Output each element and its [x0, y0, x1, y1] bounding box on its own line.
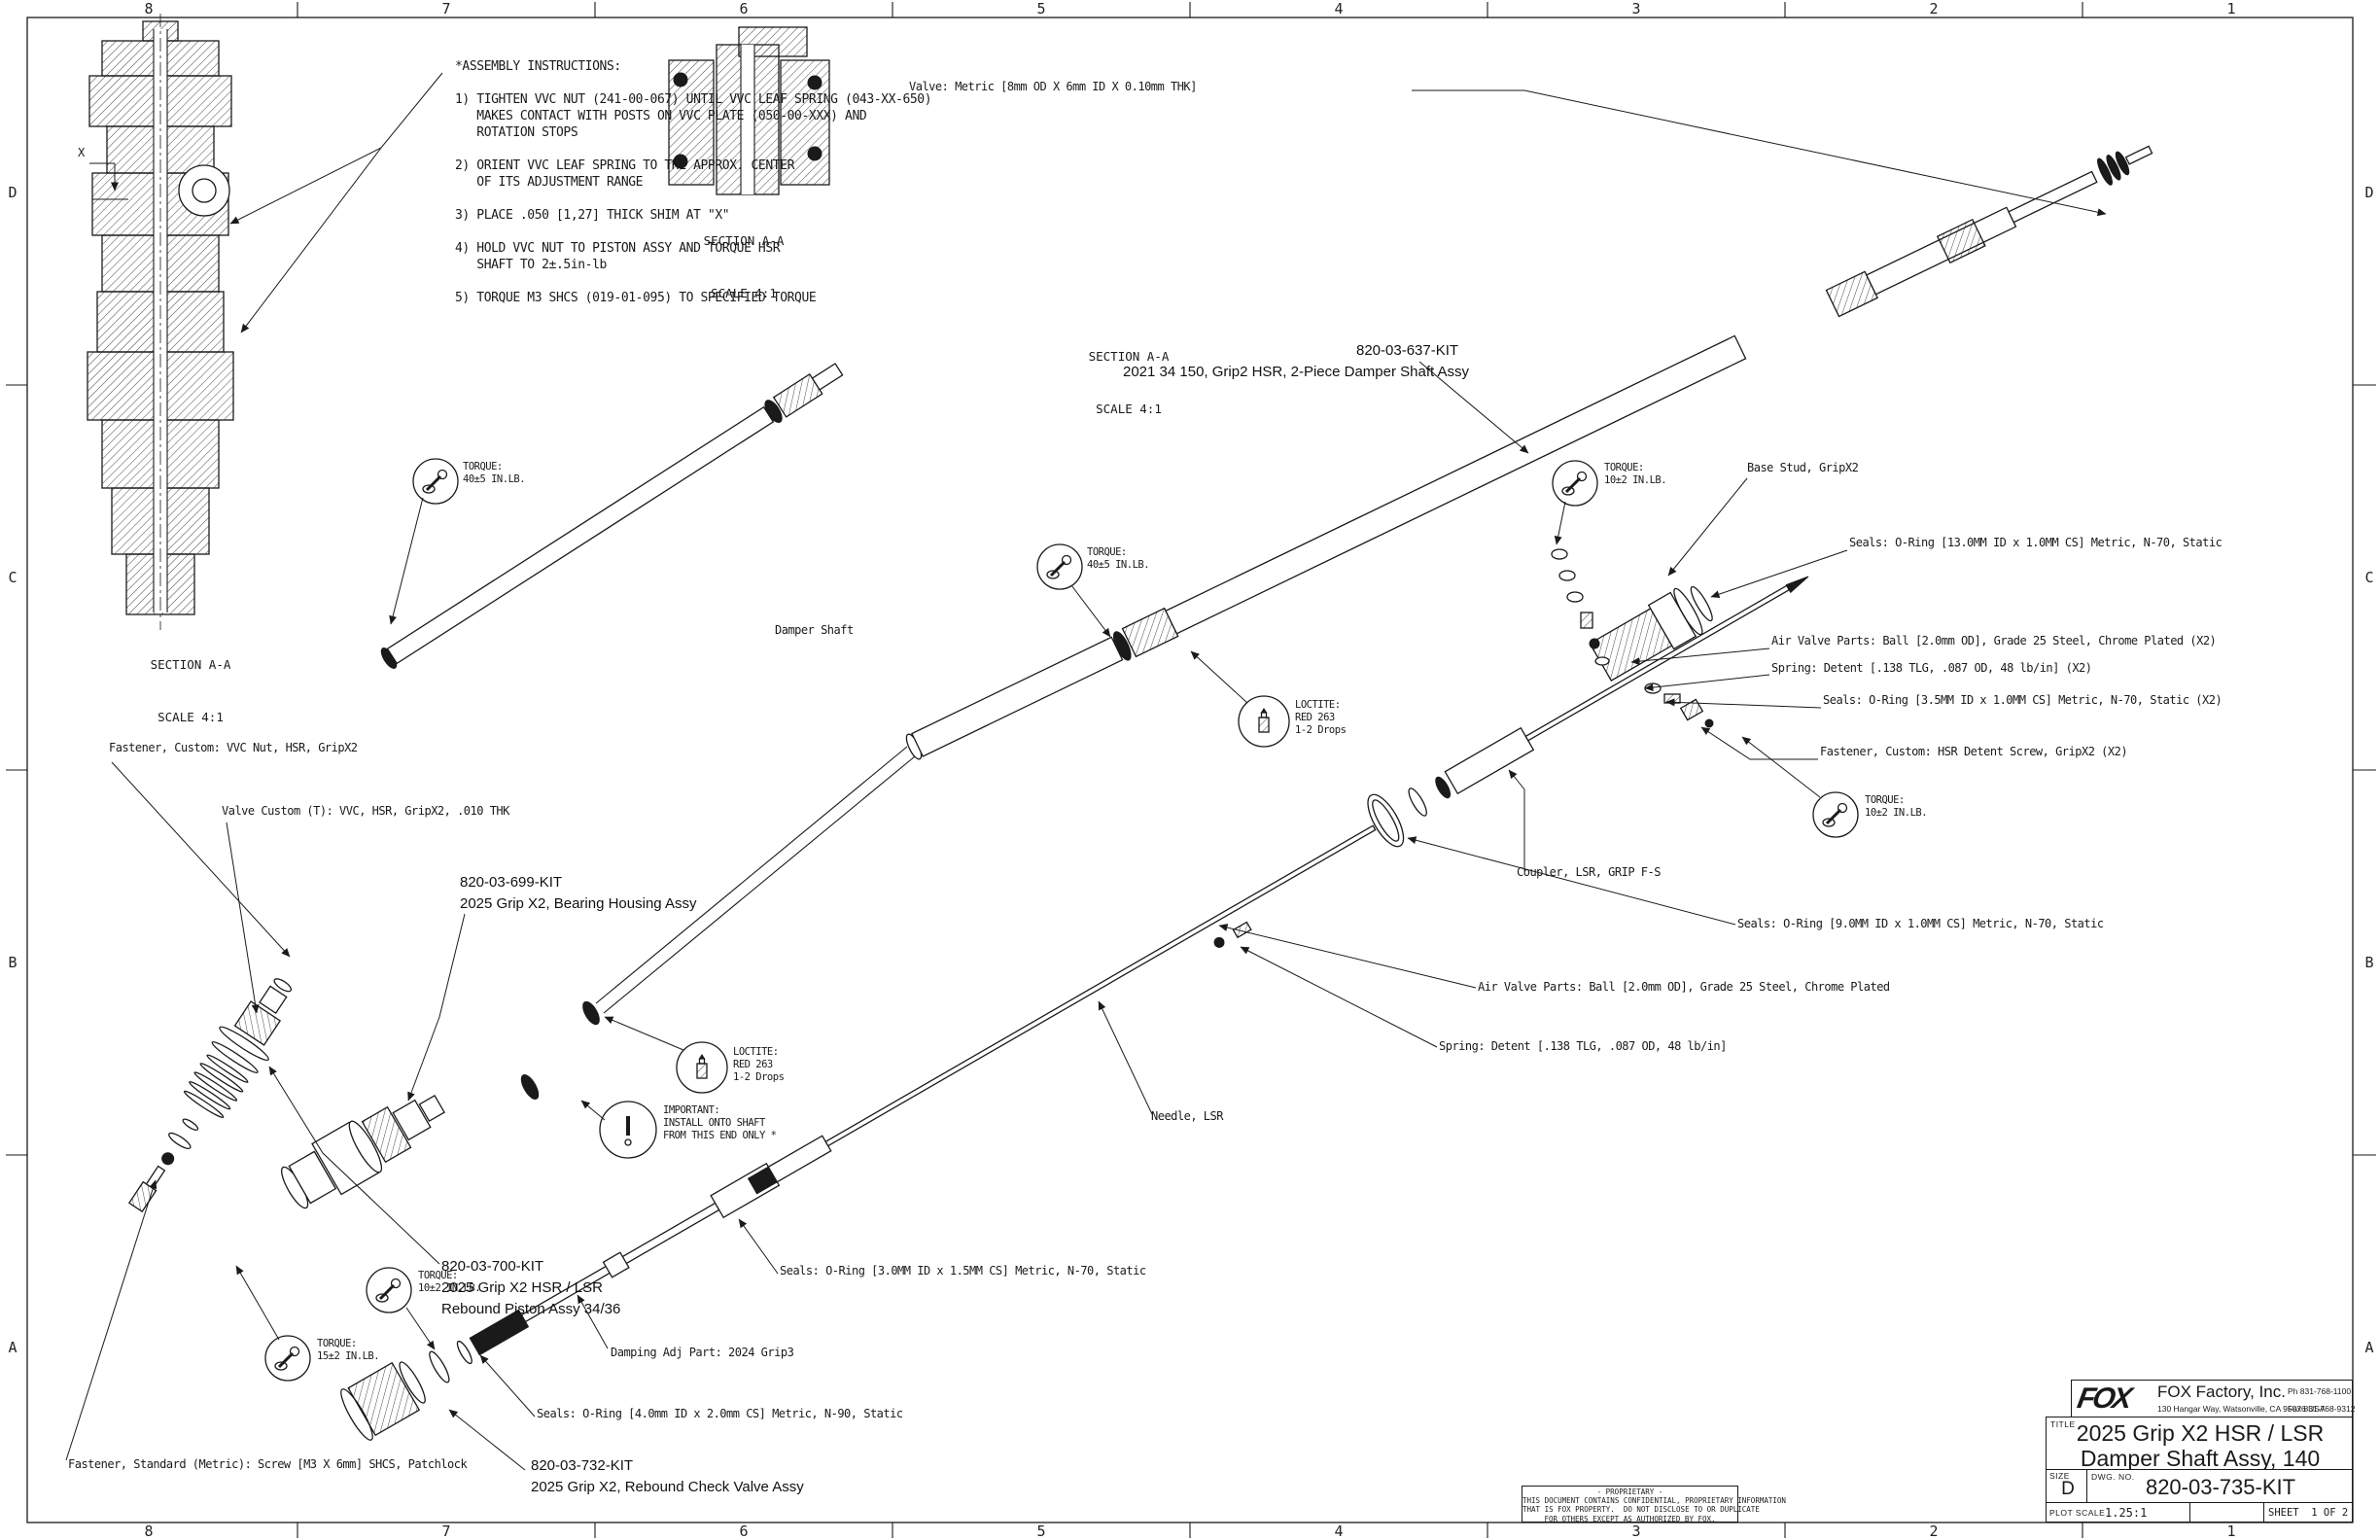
sheet-frame: [6, 2, 2376, 1538]
drawing-sheet: 8 7 6 5 4 3 2 1 8 7 6 5 4 3 2 1 D C B A …: [0, 0, 2380, 1540]
callout-seals-13mm: Seals: O-Ring [13.0MM ID x 1.0MM CS] Met…: [1849, 536, 2222, 549]
x-dim-label: X: [78, 146, 85, 159]
zone-col-bottom: 6: [724, 1522, 763, 1540]
zone-col-top: 5: [1022, 0, 1061, 17]
callout-seals-9mm: Seals: O-Ring [9.0MM ID x 1.0MM CS] Metr…: [1737, 917, 2104, 930]
zone-row-left: D: [2, 184, 23, 201]
callout-damper-shaft: Damper Shaft: [775, 623, 854, 637]
callout-air-valve-x2: Air Valve Parts: Ball [2.0mm OD], Grade …: [1771, 634, 2216, 647]
torque-15-text: TORQUE: 15±2 IN.LB.: [317, 1338, 379, 1363]
kit-637-desc: 2021 34 150, Grip2 HSR, 2-Piece Damper S…: [1123, 362, 1469, 383]
sheet-cell: SHEET 1 OF 2: [2263, 1502, 2353, 1522]
section-caption-top: SECTION A-A SCALE 4:1: [681, 197, 807, 337]
torque-10-text: TORQUE: 10±2 IN.LB.: [1865, 794, 1927, 820]
company-fax: Fax 831-768-9312: [2288, 1404, 2355, 1414]
dwg-number: 820-03-735-KIT: [2087, 1475, 2354, 1500]
callout-seals-35mm: Seals: O-Ring [3.5MM ID x 1.0MM CS] Metr…: [1823, 693, 2222, 707]
proprietary-note: - PROPRIETARY - THIS DOCUMENT CONTAINS C…: [1522, 1486, 1738, 1522]
torque-40-text: TORQUE: 40±5 IN.LB.: [1087, 546, 1149, 572]
fox-logo: FOX: [2075, 1382, 2132, 1416]
zone-col-top: 6: [724, 0, 763, 17]
zone-col-bottom: 8: [129, 1522, 168, 1540]
damper-shaft-end-piece: [1826, 137, 2156, 317]
zone-col-top: 4: [1319, 0, 1358, 17]
zone-row-left: A: [2, 1339, 23, 1356]
zone-row-left: C: [2, 569, 23, 586]
zone-col-top: 3: [1617, 0, 1656, 17]
dwg-cell: DWG. NO. 820-03-735-KIT: [2086, 1469, 2353, 1504]
loctite-text: LOCTITE: RED 263 1-2 Drops: [733, 1046, 784, 1084]
zone-col-bottom: 4: [1319, 1522, 1358, 1540]
torque-badge-15: [265, 1336, 310, 1381]
callout-damping-adj: Damping Adj Part: 2024 Grip3: [611, 1346, 793, 1359]
drawing-title-line2: Damper Shaft Assy, 140: [2047, 1446, 2354, 1472]
torque-badge-40a: [413, 459, 458, 504]
section-view-left: [87, 14, 233, 630]
vvc-parts-chain: [112, 965, 309, 1223]
zone-col-top: 8: [129, 0, 168, 17]
plot-scale-cell: PLOT SCALE 1.25:1: [2046, 1502, 2191, 1522]
callout-air-valve: Air Valve Parts: Ball [2.0mm OD], Grade …: [1478, 980, 1890, 994]
kit-637: 820-03-637-KIT: [1356, 340, 1458, 362]
zone-row-right: D: [2359, 184, 2380, 201]
size-value: D: [2047, 1479, 2089, 1500]
callout-coupler: Coupler, LSR, GRIP F-S: [1517, 865, 1661, 879]
callout-needle: Needle, LSR: [1151, 1109, 1223, 1123]
zone-col-bottom: 7: [427, 1522, 466, 1540]
torque-40-text: TORQUE: 40±5 IN.LB.: [463, 461, 525, 486]
callout-vvc-nut: Fastener, Custom: VVC Nut, HSR, GripX2: [109, 741, 358, 754]
company-name: FOX Factory, Inc.: [2157, 1382, 2286, 1402]
zone-col-bottom: 3: [1617, 1522, 1656, 1540]
torque-10-text: TORQUE: 10±2 IN.LB.: [418, 1270, 480, 1295]
loctite-badge-2: [677, 1042, 727, 1093]
zone-row-right: C: [2359, 569, 2380, 586]
drawing-canvas: [0, 0, 2380, 1540]
callout-base-stud: Base Stud, GripX2: [1747, 461, 1858, 474]
zone-col-top: 2: [1914, 0, 1953, 17]
kit-699: 820-03-699-KIT 2025 Grip X2, Bearing Hou…: [460, 872, 696, 915]
loctite-badge-1: [1239, 696, 1289, 747]
callout-seals-40mm: Seals: O-Ring [4.0mm ID x 2.0mm CS] Metr…: [537, 1407, 903, 1420]
torque-badge-10b: [1813, 792, 1858, 837]
callout-fastener-m3: Fastener, Standard (Metric): Screw [M3 X…: [68, 1457, 467, 1471]
zone-col-bottom: 1: [2212, 1522, 2251, 1540]
company-phone: Ph 831-768-1100: [2288, 1386, 2351, 1396]
zone-col-bottom: 2: [1914, 1522, 1953, 1540]
callout-spring: Spring: Detent [.138 TLG, .087 OD, 48 lb…: [1439, 1039, 1727, 1053]
callout-fastener-detent: Fastener, Custom: HSR Detent Screw, Grip…: [1820, 745, 2127, 758]
sheet-info: SHEET 1 OF 2: [2268, 1507, 2348, 1519]
title-block-header: FOX FOX Factory, Inc. 130 Hangar Way, Wa…: [2071, 1380, 2353, 1418]
plot-scale-label: PLOT SCALE: [2049, 1508, 2105, 1518]
callout-seals-30mm: Seals: O-Ring [3.0MM ID x 1.5MM CS] Metr…: [780, 1264, 1146, 1277]
callout-valve-custom: Valve Custom (T): VVC, HSR, GripX2, .010…: [222, 804, 509, 818]
plot-scale-value: 1.25:1: [2105, 1506, 2147, 1520]
torque-badge-40b: [1037, 544, 1082, 589]
torque-badge-10c: [367, 1268, 411, 1312]
zone-col-bottom: 5: [1022, 1522, 1061, 1540]
important-text: IMPORTANT: INSTALL ONTO SHAFT FROM THIS …: [663, 1104, 776, 1142]
drawing-title-line1: 2025 Grip X2 HSR / LSR: [2047, 1420, 2354, 1447]
leader-lines: [66, 73, 2106, 1470]
section-caption-mid: SECTION A-A SCALE 4:1: [1066, 313, 1192, 453]
torque-badge-10a: [1553, 461, 1597, 506]
zone-col-top: 1: [2212, 0, 2251, 17]
callout-valve-metric: Valve: Metric [8mm OD X 6mm ID X 0.10mm …: [909, 80, 1197, 93]
bearing-housing: [274, 1079, 454, 1216]
spare-cell: [2189, 1502, 2265, 1522]
important-badge: [600, 1102, 656, 1158]
callout-spring-x2: Spring: Detent [.138 TLG, .087 OD, 48 lb…: [1771, 661, 2092, 675]
zone-row-right: B: [2359, 954, 2380, 971]
zone-row-left: B: [2, 954, 23, 971]
size-cell: SIZE D: [2046, 1469, 2088, 1504]
kit-732: 820-03-732-KIT 2025 Grip X2, Rebound Che…: [531, 1455, 804, 1498]
title-block-title: TITLE 2025 Grip X2 HSR / LSR Damper Shaf…: [2046, 1417, 2353, 1471]
loctite-text: LOCTITE: RED 263 1-2 Drops: [1295, 699, 1346, 737]
torque-10-text: TORQUE: 10±2 IN.LB.: [1604, 462, 1666, 487]
zone-row-right: A: [2359, 1339, 2380, 1356]
zone-col-top: 7: [427, 0, 466, 17]
